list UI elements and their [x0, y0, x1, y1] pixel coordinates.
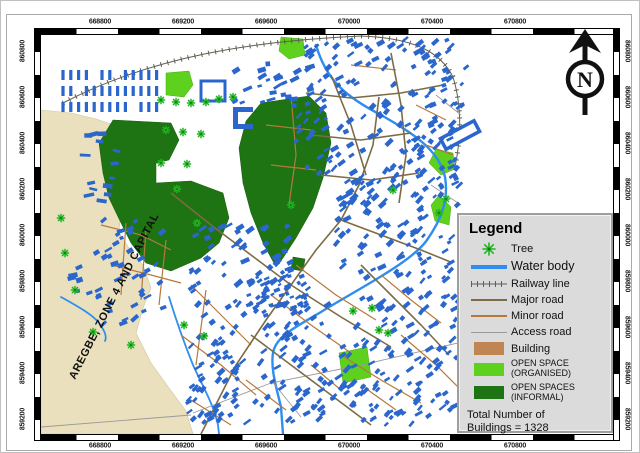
- axis-label: 668800: [89, 443, 111, 450]
- axis-label: 859200: [20, 408, 27, 430]
- tree-icon: [349, 307, 356, 314]
- tree-icon: [215, 95, 222, 102]
- legend-item-label: OPEN SPACES (INFORMAL): [511, 383, 607, 403]
- tree-icon: [162, 126, 169, 133]
- tree-icon: [173, 185, 180, 192]
- axis-label: 669200: [172, 19, 194, 26]
- tree-icon: [193, 219, 200, 226]
- neatline-right: [613, 28, 620, 441]
- axis-label: 670800: [504, 443, 526, 450]
- legend-box: Legend TreeWater bodyRailway lineMajor r…: [457, 213, 613, 433]
- legend-item-label: Tree: [511, 243, 533, 255]
- line-swatch-icon: [467, 332, 511, 333]
- legend-total-note: Total Number of Buildings = 1328: [467, 409, 607, 437]
- axis-label: 860000: [20, 224, 27, 246]
- tree-icon: [179, 128, 186, 135]
- legend-total-line1: Total Number of: [467, 409, 607, 423]
- line-swatch-icon: [467, 265, 511, 269]
- tree-icon: [200, 332, 207, 339]
- fill-swatch-icon: [467, 386, 511, 399]
- legend-item-label: OPEN SPACE (ORGANISED): [511, 359, 607, 379]
- axis-label: 859600: [624, 316, 631, 338]
- tree-icon: [57, 214, 64, 221]
- north-arrow: N: [557, 27, 613, 124]
- axis-label: 670000: [338, 443, 360, 450]
- fill-swatch-icon: [467, 342, 511, 355]
- map-sheet: 668800669200669600670000670400670800 668…: [0, 0, 640, 453]
- axis-label: 859400: [20, 362, 27, 384]
- legend-item: Water body: [467, 260, 607, 274]
- axis-label: 860600: [624, 86, 631, 108]
- tree-icon: [61, 249, 68, 256]
- neatline-top: [34, 28, 620, 35]
- legend-item: OPEN SPACES (INFORMAL): [467, 383, 607, 403]
- axis-label: 670400: [421, 19, 443, 26]
- axis-label: 668800: [89, 19, 111, 26]
- axis-label: 860600: [20, 86, 27, 108]
- axis-label: 670800: [504, 19, 526, 26]
- neatline-left: [34, 28, 41, 441]
- tree-icon: [71, 286, 78, 293]
- legend-item: Access road: [467, 326, 607, 338]
- axis-label: 669200: [172, 443, 194, 450]
- railway-swatch-icon: [467, 280, 511, 288]
- tree-icon: [375, 326, 382, 333]
- legend-item: Building: [467, 342, 607, 355]
- legend-item-label: Railway line: [511, 278, 570, 290]
- legend-item: Minor road: [467, 310, 607, 322]
- legend-item: Major road: [467, 294, 607, 306]
- tree-icon: [127, 341, 134, 348]
- tree-icon: [384, 329, 391, 336]
- axis-label: 859400: [624, 362, 631, 384]
- tree-icon: [187, 99, 194, 106]
- axis-label: 859800: [624, 270, 631, 292]
- tree-icon: [287, 201, 294, 208]
- legend-item: Tree: [467, 242, 607, 256]
- legend-item-label: Water body: [511, 260, 574, 274]
- tree-icon: [157, 159, 164, 166]
- tree-icon: [197, 130, 204, 137]
- axis-label: 860800: [624, 40, 631, 62]
- tree-icon: [202, 98, 209, 105]
- tree-icon: [157, 96, 164, 103]
- legend-rows: TreeWater bodyRailway lineMajor roadMino…: [467, 242, 607, 403]
- tree-icon: [183, 160, 190, 167]
- axis-label: 669600: [255, 443, 277, 450]
- axis-label: 859200: [624, 408, 631, 430]
- axis-label: 860200: [20, 178, 27, 200]
- legend-item-label: Minor road: [511, 310, 564, 322]
- tree-icon: [368, 304, 375, 311]
- axis-label: 860200: [624, 178, 631, 200]
- tree-icon: [172, 98, 179, 105]
- tree-icon: [180, 321, 187, 328]
- north-arrow-label: N: [577, 67, 593, 92]
- axis-label: 670400: [421, 443, 443, 450]
- legend-item-label: Building: [511, 343, 550, 355]
- legend-item: Railway line: [467, 278, 607, 290]
- axis-label: 860400: [20, 132, 27, 154]
- line-swatch-icon: [467, 299, 511, 301]
- tree-icon: [389, 186, 396, 193]
- legend-item-label: Access road: [511, 326, 572, 338]
- legend-item-label: Major road: [511, 294, 564, 306]
- axis-label: 860000: [624, 224, 631, 246]
- legend-title: Legend: [469, 220, 607, 237]
- axis-label: 669600: [255, 19, 277, 26]
- axis-label: 860400: [624, 132, 631, 154]
- tree-icon: [442, 195, 449, 202]
- fill-swatch-icon: [467, 363, 511, 376]
- tree-icon: [229, 93, 236, 100]
- tree-icon: [435, 209, 442, 216]
- line-swatch-icon: [467, 315, 511, 317]
- legend-total-line2: Buildings = 1328: [467, 422, 607, 436]
- legend-item: OPEN SPACE (ORGANISED): [467, 359, 607, 379]
- tree-swatch-icon: [467, 242, 511, 256]
- axis-label: 670000: [338, 19, 360, 26]
- axis-label: 860800: [20, 40, 27, 62]
- axis-label: 859800: [20, 270, 27, 292]
- axis-label: 859600: [20, 316, 27, 338]
